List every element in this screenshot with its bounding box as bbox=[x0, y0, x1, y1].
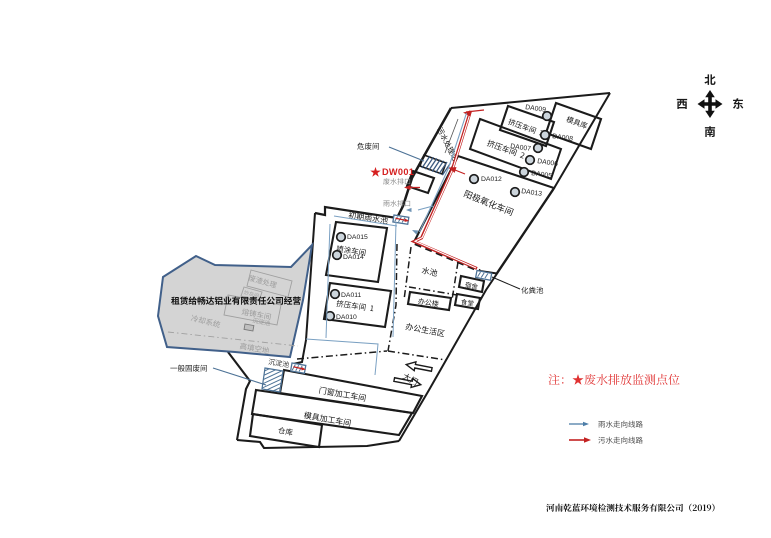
svg-text:DA010: DA010 bbox=[336, 314, 357, 321]
svg-text:DW001: DW001 bbox=[382, 167, 414, 177]
svg-text:DA012: DA012 bbox=[481, 176, 502, 183]
svg-text:DA014: DA014 bbox=[343, 254, 364, 261]
svg-text:DA015: DA015 bbox=[347, 234, 368, 241]
svg-text:DA011: DA011 bbox=[341, 292, 361, 299]
